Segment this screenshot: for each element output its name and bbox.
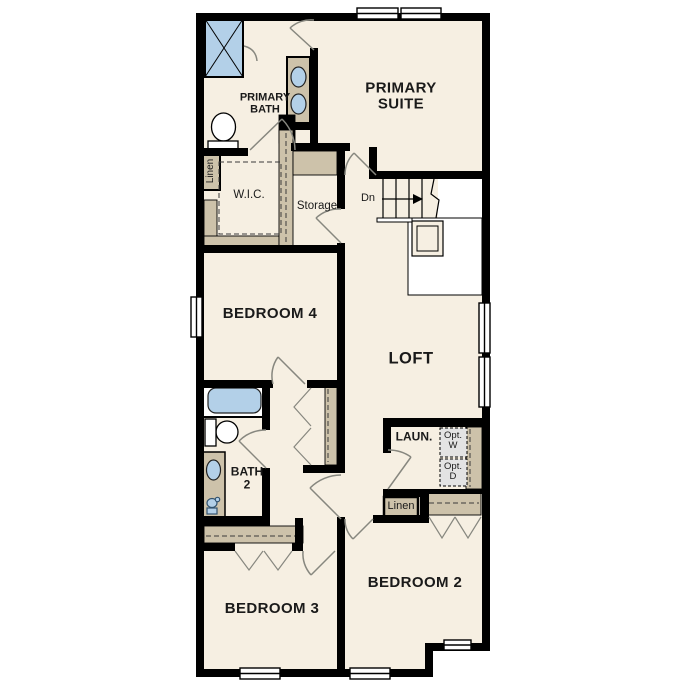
label-storage: Storage [297, 200, 337, 212]
label-laundry: LAUN. [396, 431, 433, 444]
wall-bedroom4-north [196, 245, 345, 253]
wall-toilet-alcove [196, 148, 248, 156]
wall-notch-vertical [425, 643, 433, 677]
label-bath2: BATH2 [231, 465, 263, 490]
shower [205, 19, 243, 77]
window-primary-suite-1 [357, 8, 398, 19]
bathtub [203, 383, 266, 417]
wall-exterior-bottom [196, 669, 433, 677]
wall-laundry-north [383, 418, 490, 427]
window-loft-1 [479, 303, 490, 353]
wall-exterior-top [196, 13, 490, 21]
wall-bedroom4-south-west [196, 380, 273, 388]
wall-storage-east [337, 143, 345, 209]
window-loft-2 [479, 357, 490, 407]
bath2-sink [207, 460, 221, 480]
label-bedroom2: BEDROOM 2 [368, 575, 462, 591]
label-primary-suite: PRIMARYSUITE [365, 80, 436, 112]
wall-bedroom4-loft [337, 245, 345, 473]
wall-bedroom2-3-divider [337, 517, 345, 677]
label-bedroom3: BEDROOM 3 [225, 601, 319, 617]
window-bedroom3 [240, 668, 280, 679]
wall-bath-suite [310, 48, 318, 151]
wall-hall-closet-bottom [303, 465, 345, 473]
floor-plan-drawing [0, 0, 687, 687]
window-notch [444, 640, 471, 650]
stairwell-void-upper [438, 179, 482, 219]
floor-plan: PRIMARYBATH PRIMARYSUITE Linen W.I.C. St… [0, 0, 687, 687]
wall-bath2-east-upper [262, 380, 270, 430]
label-wic: W.I.C. [233, 189, 264, 201]
wall-bedroom2-north [373, 515, 427, 523]
laundry-chase [466, 427, 482, 489]
wall-exterior-left [196, 13, 204, 677]
wall-bath2-south [196, 516, 270, 526]
label-opt-washer: Opt.W [444, 431, 462, 451]
bedroom3-closet-shelf [204, 526, 303, 543]
bath2-toilet [205, 419, 238, 446]
label-stairs-dn: Dn [361, 193, 375, 205]
label-linen-lower: Linen [388, 501, 415, 513]
storage-shelf [293, 151, 337, 175]
label-bedroom4: BEDROOM 4 [223, 306, 317, 322]
window-bedroom4 [191, 297, 202, 337]
hall-closet-shelf [325, 386, 337, 465]
window-bedroom2 [350, 668, 390, 679]
window-primary-suite-2 [401, 8, 441, 19]
label-opt-dryer: Opt.D [444, 462, 462, 482]
label-linen-upper: Linen [206, 159, 217, 183]
wall-bedroom3-north-mid [292, 543, 303, 551]
label-primary-bath: PRIMARYBATH [240, 92, 290, 115]
wall-bedroom4-south-east [307, 380, 341, 388]
wall-bedroom2-closet-top [427, 489, 482, 494]
stair-rail [377, 218, 412, 222]
wall-bedroom3-north-west [196, 543, 235, 551]
wall-stair-top [369, 171, 490, 179]
label-loft: LOFT [388, 350, 433, 367]
